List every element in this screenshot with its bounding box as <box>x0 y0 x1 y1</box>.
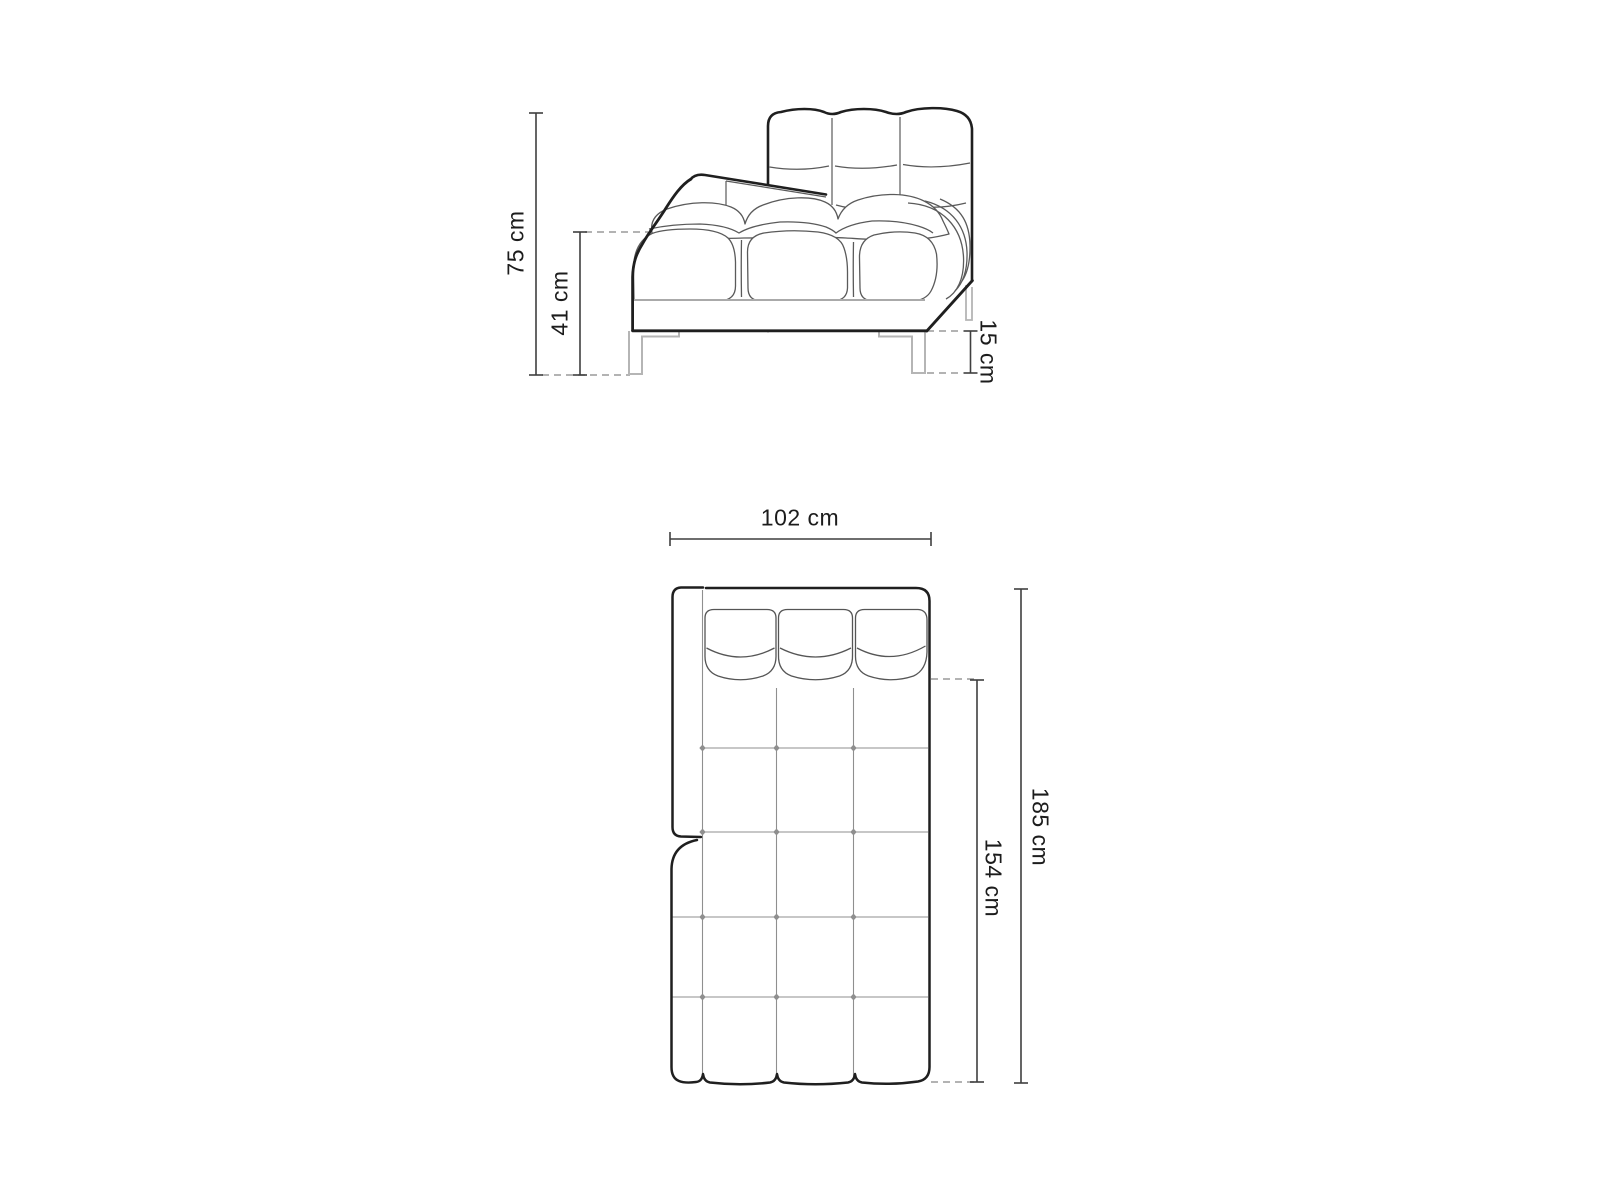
rear-leg <box>966 285 972 320</box>
front-legs <box>629 331 925 374</box>
plan-body-fill <box>671 587 930 1082</box>
plan-extension-dashes <box>931 679 976 1082</box>
side-total-height-label: 75 cm <box>503 210 530 275</box>
base-platform <box>633 299 927 331</box>
dimension-diagram: 75 cm 41 cm 15 cm 102 cm 154 cm 185 cm <box>0 0 1600 1200</box>
side-leg-height-label: 15 cm <box>975 319 1002 384</box>
diagram-linework <box>0 0 1600 1200</box>
plan-total-depth-label: 185 cm <box>1027 788 1054 866</box>
side-seat-height-label: 41 cm <box>547 270 574 335</box>
seat-front-cushions <box>633 229 937 301</box>
plan-width-label: 102 cm <box>761 505 839 532</box>
side-elevation-drawing <box>529 108 978 375</box>
top-plan-drawing <box>670 532 1028 1084</box>
plan-seat-depth-label: 154 cm <box>980 839 1007 917</box>
